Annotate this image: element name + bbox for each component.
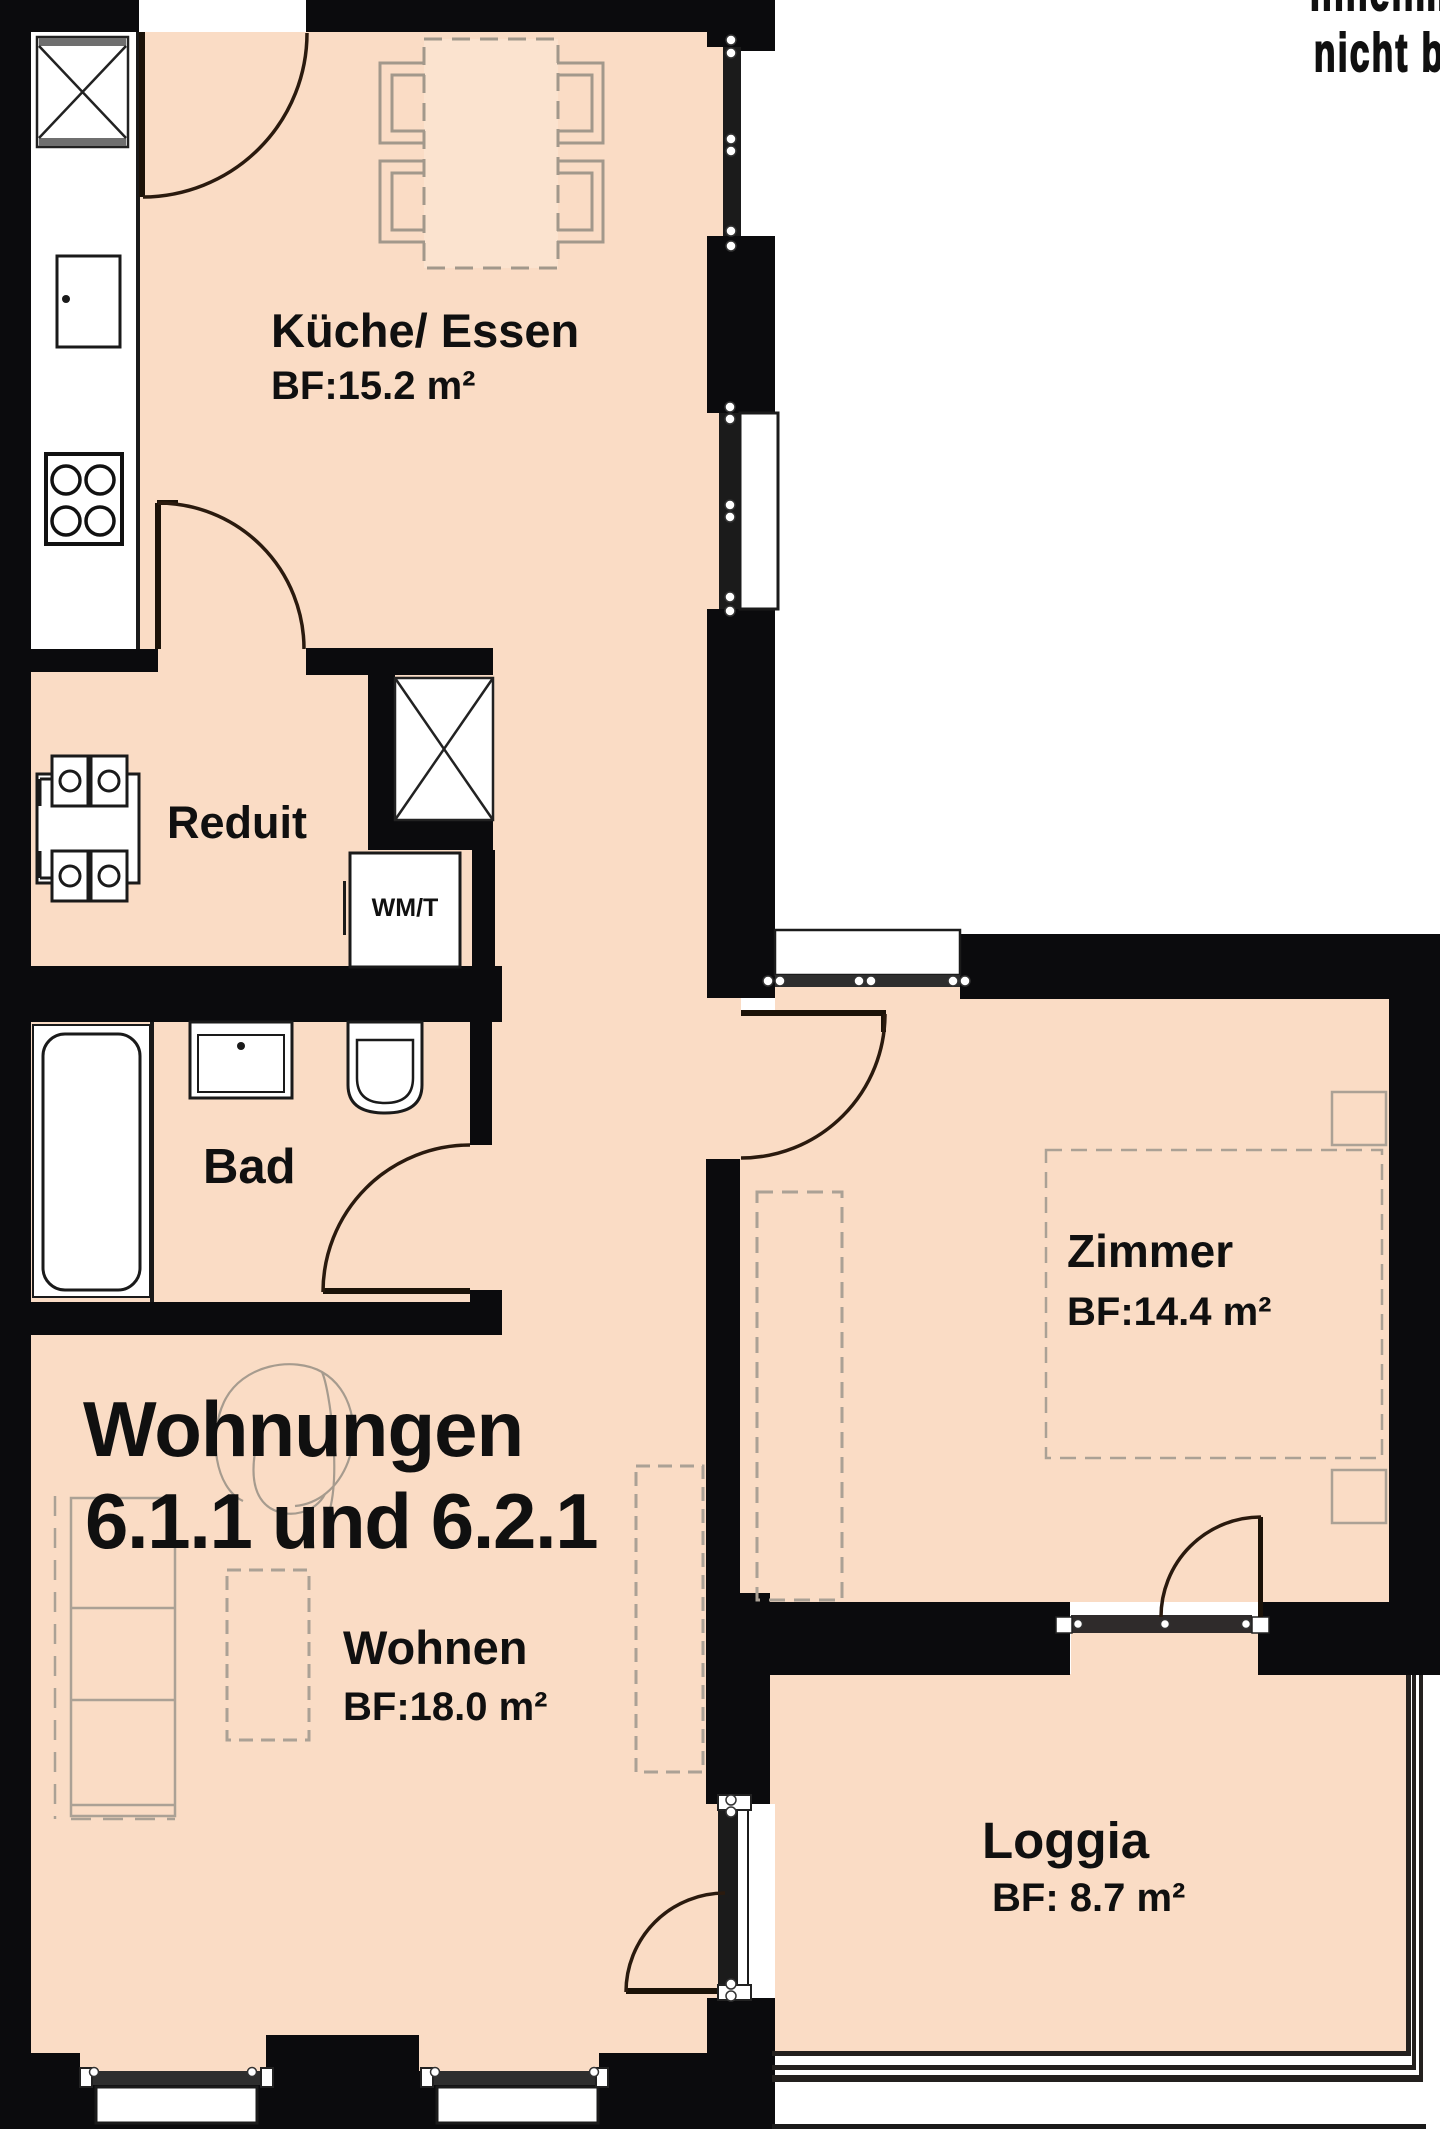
svg-text:Innenmasse: Innenmasse: [1310, 0, 1440, 22]
svg-text:BF:14.4 m²: BF:14.4 m²: [1067, 1290, 1272, 1334]
svg-text:Küche/ Essen: Küche/ Essen: [271, 304, 579, 357]
svg-text:Reduit: Reduit: [167, 797, 307, 848]
svg-text:nicht bemasst: nicht bemasst: [1314, 22, 1440, 82]
svg-text:BF: 8.7 m²: BF: 8.7 m²: [992, 1876, 1185, 1920]
svg-text:Loggia: Loggia: [982, 1812, 1150, 1869]
svg-text:Bad: Bad: [203, 1140, 296, 1194]
svg-text:BF:15.2 m²: BF:15.2 m²: [271, 364, 476, 408]
svg-text:BF:18.0 m²: BF:18.0 m²: [343, 1685, 548, 1729]
svg-text:Wohnen: Wohnen: [343, 1621, 528, 1674]
svg-text:Zimmer: Zimmer: [1067, 1225, 1233, 1277]
svg-text:6.1.1 und 6.2.1: 6.1.1 und 6.2.1: [85, 1477, 597, 1565]
svg-text:WM/T: WM/T: [372, 894, 439, 922]
svg-text:Wohnungen: Wohnungen: [83, 1385, 523, 1473]
